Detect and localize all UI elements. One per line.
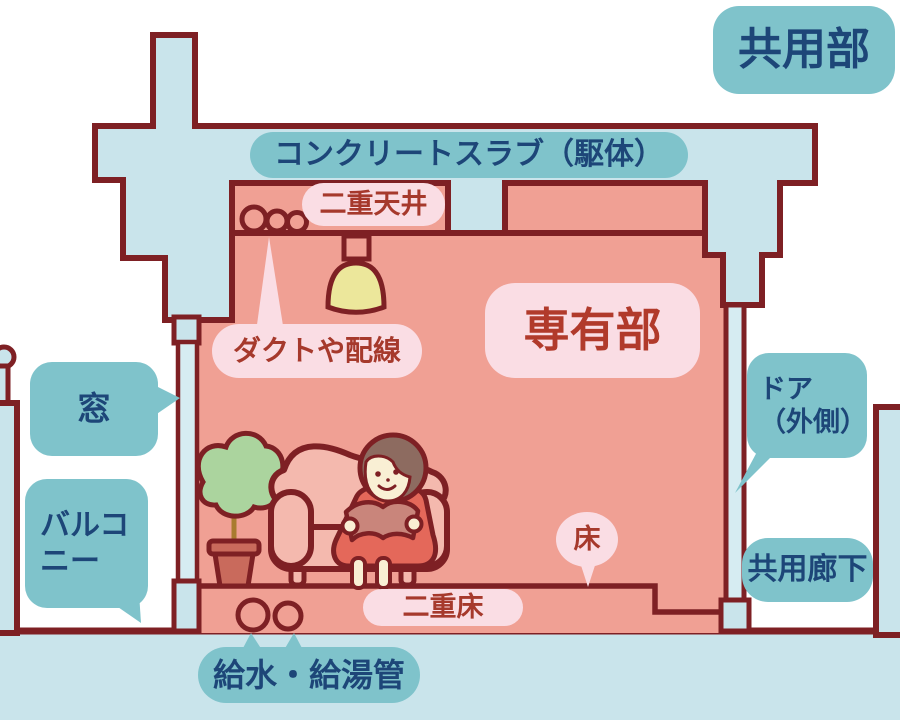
condo-cross-section-diagram: 共用部 コンクリートスラブ（駆体） 二重天井 ダクトや配線 専有部 窓 バルコニ… (0, 0, 900, 720)
label-window: 窓 (30, 362, 158, 456)
bottom-slab (0, 631, 900, 720)
label-double-ceiling: 二重天井 (302, 183, 445, 226)
label-double-floor: 二重床 (363, 589, 523, 626)
label-ducts-wiring: ダクトや配線 (212, 324, 422, 378)
label-water-pipes: 給水・給湯管 (198, 647, 420, 703)
label-private-area: 専有部 (485, 283, 700, 378)
ceiling-duct-circles (242, 207, 307, 232)
label-balcony: バルコニー (25, 479, 148, 608)
balcony-railing (0, 347, 17, 633)
label-common-area: 共用部 (713, 6, 895, 94)
label-concrete-slab: コンクリートスラブ（駆体） (250, 132, 688, 178)
label-floor: 床 (556, 512, 618, 567)
corridor-wall (876, 407, 900, 635)
label-common-corridor: 共用廊下 (742, 538, 873, 602)
window-glass (174, 317, 199, 631)
label-door-outside: ドア （外側） (747, 353, 867, 458)
